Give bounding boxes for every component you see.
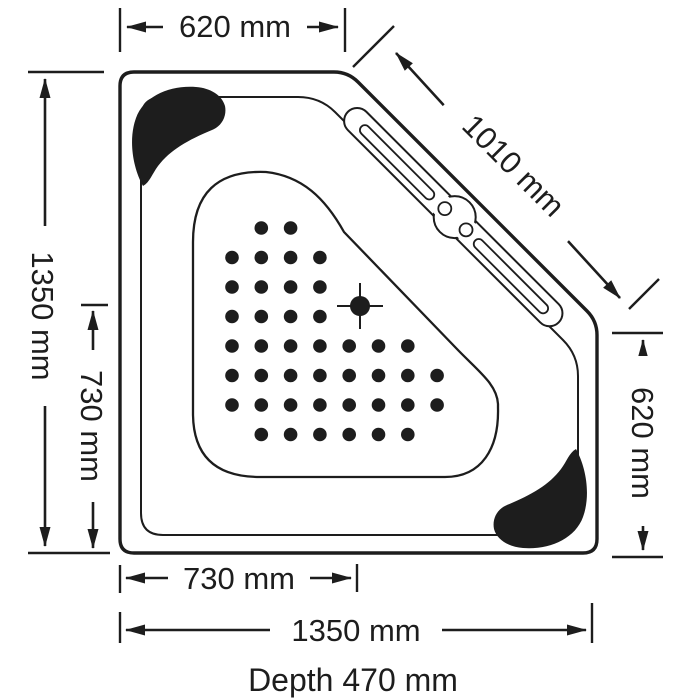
dim-top-width-label: 620 mm <box>179 9 291 44</box>
anti-slip-dot <box>313 339 327 353</box>
bathtub-technical-drawing: 620 mm 1010 mm 1350 mm 730 mm <box>0 0 700 700</box>
anti-slip-dot <box>401 428 415 442</box>
anti-slip-dot <box>313 280 327 294</box>
anti-slip-dot <box>430 398 444 412</box>
drain-hole <box>350 296 370 316</box>
anti-slip-dot <box>225 310 239 324</box>
anti-slip-dot <box>284 221 298 235</box>
dim-left-height-label: 1350 mm <box>25 251 60 380</box>
anti-slip-dot <box>254 369 268 383</box>
depth-note-label: Depth 470 mm <box>248 662 458 698</box>
dim-tick <box>353 26 394 67</box>
anti-slip-dot <box>342 369 356 383</box>
dim-right-height: 620 mm <box>612 333 666 557</box>
anti-slip-dot <box>284 398 298 412</box>
anti-slip-dot <box>372 428 386 442</box>
anti-slip-dot <box>225 369 239 383</box>
anti-slip-dot <box>430 369 444 383</box>
anti-slip-dot <box>313 428 327 442</box>
headrest-top-left <box>132 87 225 186</box>
anti-slip-dot <box>313 251 327 265</box>
headrest-bottom-right <box>494 449 587 548</box>
grab-slot-lower <box>472 237 550 315</box>
anti-slip-dot <box>372 339 386 353</box>
anti-slip-dot <box>254 428 268 442</box>
anti-slip-dot <box>284 310 298 324</box>
anti-slip-dot <box>254 280 268 294</box>
drain <box>337 283 383 329</box>
dim-top-width: 620 mm <box>120 8 345 52</box>
anti-slip-dot <box>313 398 327 412</box>
anti-slip-dot <box>313 310 327 324</box>
anti-slip-dot <box>342 428 356 442</box>
anti-slip-dot <box>342 398 356 412</box>
anti-slip-dot <box>401 369 415 383</box>
anti-slip-dot <box>372 398 386 412</box>
dim-left-drain-offset: 730 mm <box>71 305 113 548</box>
anti-slip-dot <box>225 339 239 353</box>
dim-right-height-label: 620 mm <box>625 387 660 499</box>
anti-slip-dot <box>284 251 298 265</box>
grab-slot-upper <box>358 123 436 201</box>
anti-slip-dots <box>225 221 444 441</box>
drawing-canvas: 620 mm 1010 mm 1350 mm 730 mm <box>0 0 700 700</box>
dim-bottom-drain-offset-label: 730 mm <box>183 561 295 596</box>
dim-left-drain-offset-label: 730 mm <box>74 370 109 482</box>
anti-slip-dot <box>284 339 298 353</box>
anti-slip-dot <box>254 339 268 353</box>
anti-slip-dot <box>254 221 268 235</box>
anti-slip-dot <box>254 398 268 412</box>
anti-slip-dot <box>225 251 239 265</box>
dim-bottom-width: 1350 mm <box>120 603 592 649</box>
dim-bottom-drain-offset: 730 mm <box>120 560 357 597</box>
anti-slip-dot <box>401 339 415 353</box>
dim-bottom-width-label: 1350 mm <box>291 613 420 648</box>
anti-slip-dot <box>284 280 298 294</box>
anti-slip-dot <box>342 339 356 353</box>
dim-tick <box>629 279 659 309</box>
anti-slip-dot <box>225 280 239 294</box>
anti-slip-dot <box>313 369 327 383</box>
anti-slip-dot <box>225 398 239 412</box>
anti-slip-dot <box>284 369 298 383</box>
anti-slip-dot <box>401 398 415 412</box>
anti-slip-dot <box>254 310 268 324</box>
anti-slip-dot <box>284 428 298 442</box>
anti-slip-dot <box>254 251 268 265</box>
anti-slip-dot <box>372 369 386 383</box>
